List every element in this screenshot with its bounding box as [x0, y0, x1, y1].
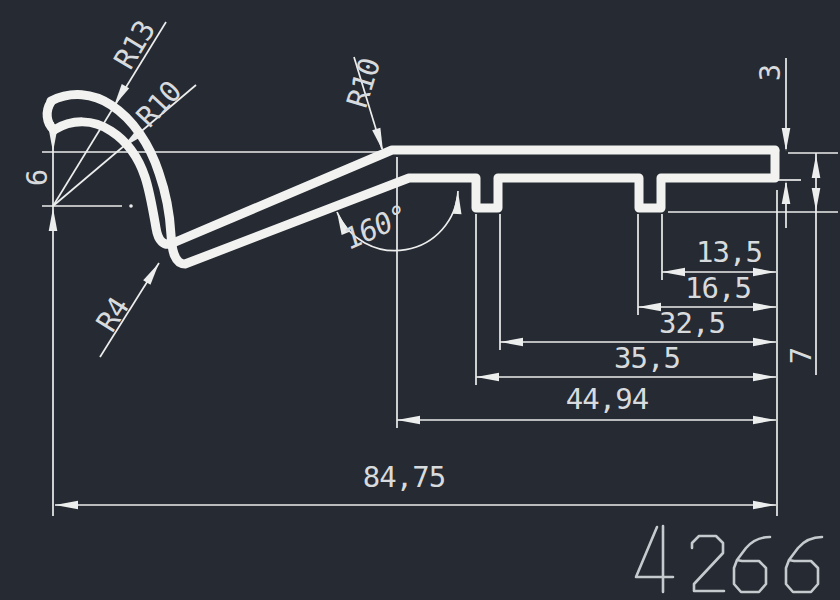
- dim-label-7: 7: [784, 348, 818, 364]
- dim-label-35-5: 35,5: [614, 341, 680, 375]
- dim-label-44-94: 44,94: [566, 382, 649, 416]
- digit-4: [636, 526, 673, 592]
- dim-label-32-5: 32,5: [659, 306, 725, 340]
- digit-6a: [734, 537, 770, 592]
- dim-label-84-75: 84,75: [363, 460, 445, 494]
- center-line-dot: [129, 204, 133, 208]
- profile-hook-tip-cap: [47, 102, 54, 130]
- radius-label-r13: R13: [107, 15, 162, 75]
- digit-6b: [786, 537, 822, 592]
- profile-drawing: 13,5 16,5 32,5 35,5 44,94 84,75 6 3 7 R1…: [0, 0, 840, 600]
- dim-label-16-5: 16,5: [685, 271, 751, 305]
- cad-canvas: 13,5 16,5 32,5 35,5 44,94 84,75 6 3 7 R1…: [0, 0, 840, 600]
- dim-label-6: 6: [20, 170, 54, 186]
- dim-label-13-5: 13,5: [696, 235, 762, 269]
- dim-label-3: 3: [753, 65, 787, 81]
- radius-label-r10-junction: R10: [340, 54, 387, 111]
- radius-label-r4: R4: [89, 291, 136, 337]
- digit-2: [692, 536, 724, 591]
- profile-number: [636, 526, 822, 592]
